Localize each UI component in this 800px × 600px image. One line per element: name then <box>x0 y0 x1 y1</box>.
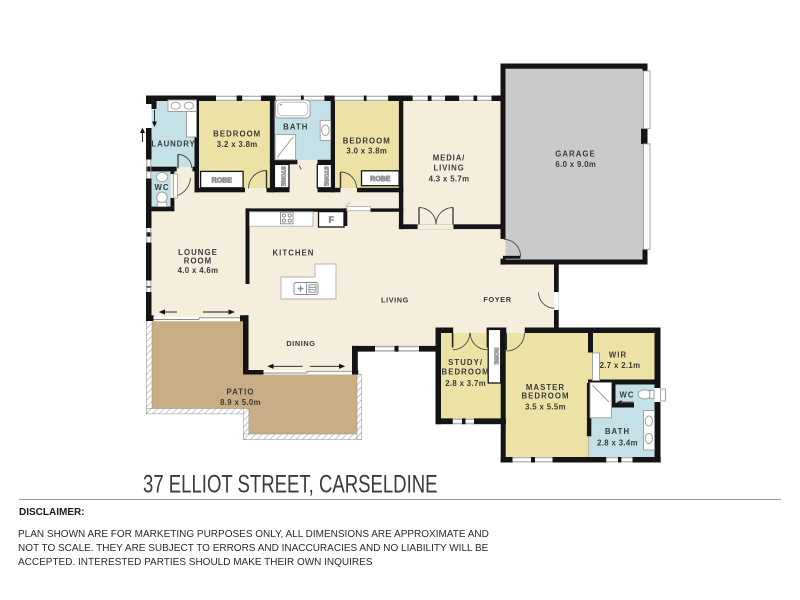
svg-text:37 ELLIOT STREET, CARSELDINE: 37 ELLIOT STREET, CARSELDINE <box>143 471 438 499</box>
